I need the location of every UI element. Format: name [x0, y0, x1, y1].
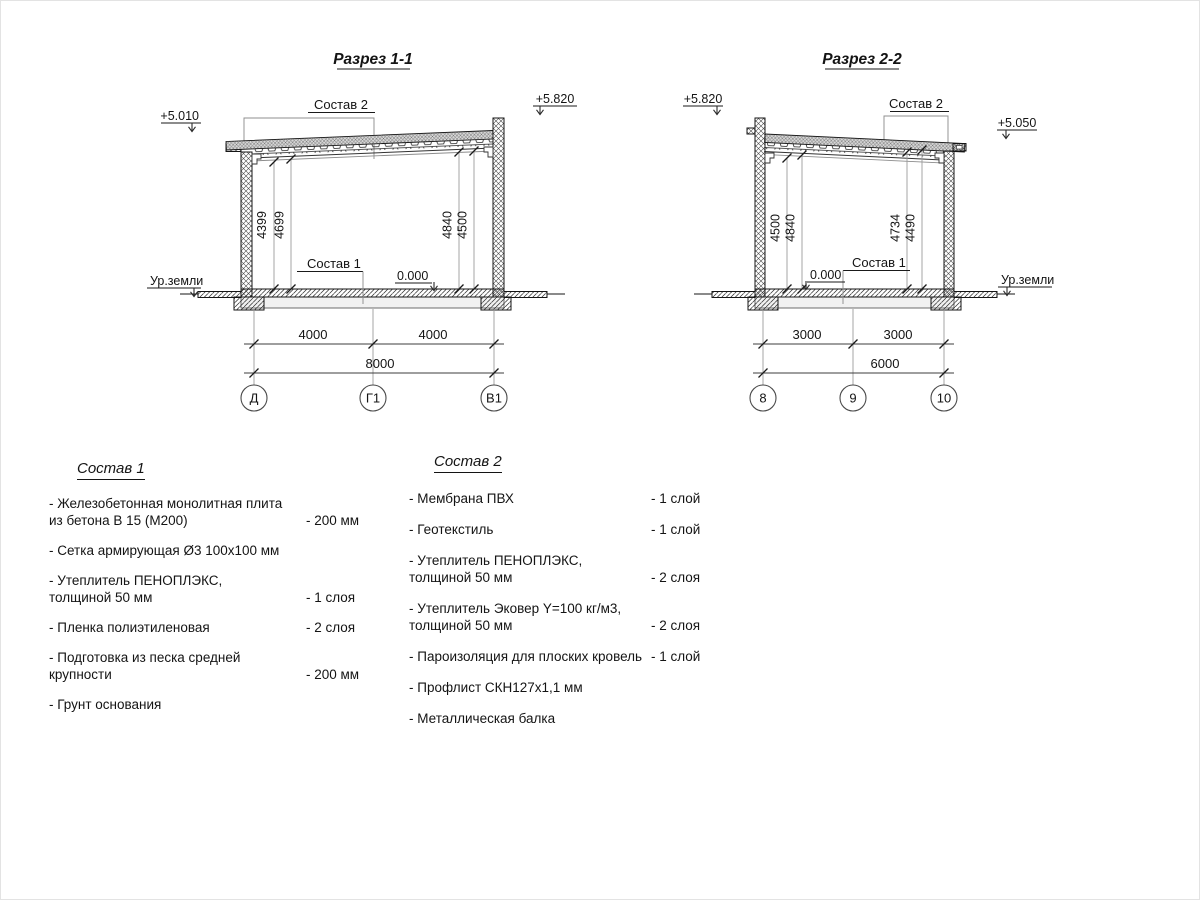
sand-layer: [755, 297, 954, 308]
elevation-value: +5.820: [684, 92, 723, 106]
footing-right: [481, 297, 511, 310]
section-2-2: Разрез 2-2 Состав 2: [683, 51, 1054, 411]
item-text: толщиной 50 мм: [49, 590, 152, 605]
dim-height: 4734: [889, 214, 903, 242]
item-text: из бетона В 15 (М200): [49, 513, 188, 528]
item-text: - Утеплитель ПЕНОПЛЭКС,: [49, 573, 222, 588]
dim-total: 6000: [871, 356, 900, 371]
drawing-sheet: Разрез 1-1 Состав 2: [0, 0, 1200, 900]
axis-label: 9: [849, 391, 856, 406]
list-item: - Утеплитель Эковер Y=100 кг/м3,толщиной…: [409, 600, 719, 634]
item-text: - Профлист СКН127х1,1 мм: [409, 680, 583, 695]
dim-span: 4000: [299, 327, 328, 342]
list-item: - Утеплитель ПЕНОПЛЭКС,толщиной 50 мм - …: [409, 552, 719, 586]
corbel-right: [935, 153, 944, 163]
section-2-2-title: Разрез 2-2: [822, 51, 902, 68]
ground-level-label: Ур.земли: [1001, 273, 1054, 287]
item-text: - Железобетонная монолитная плита: [49, 496, 282, 511]
bottom-dimensions: 3000 3000 6000: [753, 309, 954, 385]
dim-span: 3000: [793, 327, 822, 342]
elevation-mark-left: +5.010: [160, 109, 201, 132]
list-item: - Грунт основания: [49, 696, 379, 713]
list-item: - Геотекстиль - 1 слой: [409, 521, 719, 538]
roof-assembly: [764, 134, 965, 164]
corbel-left: [765, 153, 774, 163]
list-item: - Железобетонная монолитная плитаиз бето…: [49, 495, 379, 529]
dim-height: 4840: [441, 211, 455, 239]
item-text: - Пароизоляция для плоских кровель: [409, 649, 642, 664]
ground-level-mark: Ур.земли: [147, 274, 203, 297]
ground-strip-right: [954, 292, 997, 298]
composition-2-title: Состав 2: [434, 453, 502, 473]
footing-right: [931, 297, 961, 310]
zero-mark-label: 0.000: [810, 268, 841, 282]
item-text: - Сетка армирующая Ø3 100х100 мм: [49, 543, 279, 558]
composition-1-title: Состав 1: [77, 460, 145, 480]
item-text: - Утеплитель Эковер Y=100 кг/м3,: [409, 601, 621, 616]
elevation-mark-left: +5.820: [683, 92, 723, 115]
dim-span: 4000: [419, 327, 448, 342]
elevation-mark-right: +5.050: [997, 116, 1037, 139]
dim-height: 4500: [456, 211, 470, 239]
wall-left: [241, 152, 252, 298]
axis-label: В1: [486, 391, 502, 406]
list-item: - Пароизоляция для плоских кровель - 1 с…: [409, 648, 719, 665]
ground-strip-right: [504, 292, 547, 298]
item-value: - 2 слоя: [651, 569, 700, 586]
item-text: - Мембрана ПВХ: [409, 491, 514, 506]
dim-height: 4840: [784, 214, 798, 242]
dim-total: 8000: [366, 356, 395, 371]
item-text: толщиной 50 мм: [409, 570, 512, 585]
dim-span: 3000: [884, 327, 913, 342]
sostav1-label: Состав 1: [307, 256, 361, 271]
axis-label: Д: [250, 391, 259, 406]
composition-1-list: Состав 1 - Железобетонная монолитная пли…: [49, 460, 379, 726]
item-text: - Подготовка из песка средней: [49, 650, 240, 665]
ground-strip-left: [712, 292, 755, 298]
section-1-1-title: Разрез 1-1: [333, 51, 413, 68]
axis-label: 8: [759, 391, 766, 406]
elevation-value: +5.050: [998, 116, 1037, 130]
interior-dimensions: 4500 4840 4734 4490: [769, 146, 927, 294]
sostav1-label: Состав 1: [852, 255, 906, 270]
floor-slab: [755, 289, 954, 297]
elevation-value: +5.820: [536, 92, 575, 106]
roof-assembly: [226, 131, 494, 162]
elevation-mark-right: +5.820: [533, 92, 577, 115]
wall-left: [755, 118, 765, 298]
axis-label: Г1: [366, 391, 380, 406]
axis-bubbles: 8 9 10: [750, 385, 957, 411]
item-text: крупности: [49, 667, 112, 682]
floor-slab: [241, 289, 504, 297]
interior-dimensions: 4399 4699 4840 4500: [255, 147, 479, 294]
item-value: - 2 слоя: [306, 619, 355, 636]
footing-left: [234, 297, 264, 310]
sand-layer: [241, 297, 504, 308]
item-text: - Утеплитель ПЕНОПЛЭКС,: [409, 553, 582, 568]
ground-level-mark: Ур.земли: [998, 273, 1054, 296]
list-item: - Сетка армирующая Ø3 100х100 мм: [49, 542, 379, 559]
list-item: - Пленка полиэтиленовая - 2 слоя: [49, 619, 379, 636]
corbel-right: [484, 147, 493, 157]
corbel-left: [252, 154, 261, 164]
list-item: - Утеплитель ПЕНОПЛЭКС,толщиной 50 мм - …: [49, 572, 379, 606]
dim-height: 4699: [273, 211, 287, 239]
item-value: - 1 слой: [651, 490, 700, 507]
list-item: - Металлическая балка: [409, 710, 719, 727]
item-text: - Металлическая балка: [409, 711, 555, 726]
item-text: - Пленка полиэтиленовая: [49, 620, 210, 635]
list-item: - Подготовка из песка среднейкрупности -…: [49, 649, 379, 683]
composition-2-list: Состав 2 - Мембрана ПВХ - 1 слой - Геоте…: [409, 453, 719, 741]
item-value: - 1 слой: [651, 648, 700, 665]
item-text: толщиной 50 мм: [409, 618, 512, 633]
item-value: - 1 слой: [651, 521, 700, 538]
elevation-value: +5.010: [160, 109, 199, 123]
sections-canvas: Разрез 1-1 Состав 2: [1, 1, 1200, 431]
dim-height: 4399: [255, 211, 269, 239]
ground-strip-left: [198, 292, 241, 298]
sostav2-label: Состав 2: [889, 96, 943, 111]
wall-right: [493, 118, 504, 298]
list-item: - Мембрана ПВХ - 1 слой: [409, 490, 719, 507]
eave-channel: [953, 144, 966, 152]
axis-bubbles: Д Г1 В1: [241, 385, 507, 411]
item-value: - 2 слоя: [651, 617, 700, 634]
dim-height: 4500: [769, 214, 783, 242]
wall-right: [944, 151, 954, 298]
item-text: - Грунт основания: [49, 697, 161, 712]
dim-height: 4490: [904, 214, 918, 242]
footing-left: [748, 297, 778, 310]
item-text: - Геотекстиль: [409, 522, 493, 537]
sostav2-label: Состав 2: [314, 97, 368, 112]
item-value: - 200 мм: [306, 512, 359, 529]
zero-mark-label: 0.000: [397, 269, 428, 283]
list-item: - Профлист СКН127х1,1 мм: [409, 679, 719, 696]
section-1-1: Разрез 1-1 Состав 2: [147, 51, 577, 411]
axis-label: 10: [937, 391, 951, 406]
item-value: - 1 слоя: [306, 589, 355, 606]
item-value: - 200 мм: [306, 666, 359, 683]
bottom-dimensions: 4000 4000 8000: [244, 309, 504, 385]
ground-level-label: Ур.земли: [150, 274, 203, 288]
parapet-tab: [747, 128, 755, 134]
